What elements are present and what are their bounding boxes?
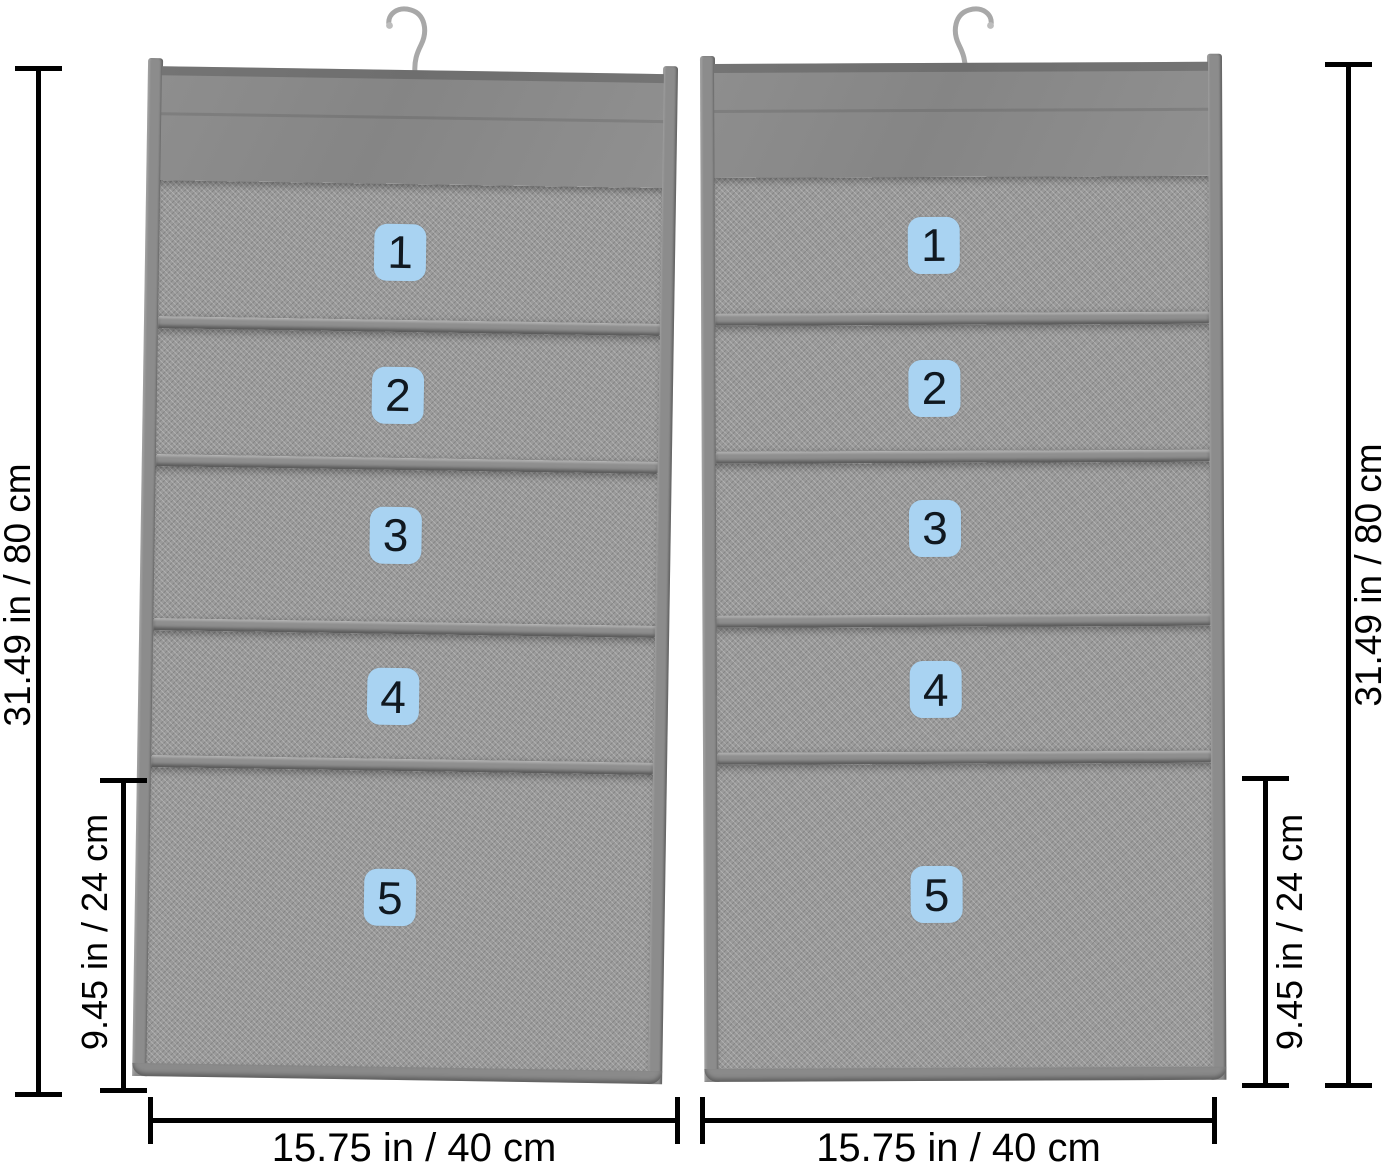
dimension-line-pocket5-left [121, 778, 126, 1093]
pocket-number-badge: 2 [371, 366, 424, 424]
mesh-pocket-1: 1 [158, 180, 662, 324]
pocket-number-badge: 5 [911, 866, 963, 923]
mesh-pocket-4: 4 [716, 626, 1211, 753]
dimension-label-width-left: 15.75 in / 40 cm [148, 1126, 680, 1168]
dimension-line-width-left [148, 1118, 680, 1123]
mesh-pocket-2: 2 [156, 328, 660, 462]
pocket-number-badge: 1 [908, 216, 960, 273]
pocket-number-badge: 3 [369, 506, 422, 564]
pocket-rows: 1 2 3 4 5 [714, 176, 1212, 1072]
mesh-pocket-5: 5 [146, 767, 653, 1074]
dimension-label-width-right: 15.75 in / 40 cm [700, 1126, 1217, 1168]
pocket-number-badge: 3 [909, 499, 961, 556]
organizer-left: 1 2 3 4 5 [132, 66, 678, 1084]
pocket-number-badge: 4 [367, 668, 420, 726]
mesh-pocket-1: 1 [714, 176, 1209, 314]
pocket-number-badge: 1 [374, 223, 427, 281]
dimension-label-height-right: 31.49 in / 80 cm [1348, 443, 1386, 706]
mesh-pocket-3: 3 [716, 462, 1211, 616]
mesh-pocket-5: 5 [717, 763, 1212, 1072]
pocket-number-badge: 5 [364, 868, 417, 926]
pocket-number-badge: 4 [910, 661, 962, 718]
mesh-pocket-2: 2 [715, 324, 1210, 452]
mesh-pocket-3: 3 [153, 466, 657, 626]
bottom-binding [704, 1067, 1226, 1082]
mesh-pocket-4: 4 [151, 630, 655, 763]
pocket-rows: 1 2 3 4 5 [146, 180, 662, 1074]
organizer-right: 1 2 3 4 5 [700, 62, 1226, 1082]
dimension-label-pocket5-left: 9.45 in / 24 cm [74, 814, 116, 1050]
pocket-number-badge: 2 [908, 359, 960, 416]
dimension-line-width-right [700, 1118, 1217, 1123]
dimension-label-pocket5-right: 9.45 in / 24 cm [1269, 814, 1311, 1050]
hanger-hook-icon-left [375, 1, 455, 73]
dimension-label-height-left: 31.49 in / 80 cm [0, 463, 39, 726]
top-fabric-panel [714, 62, 1208, 178]
top-fabric-panel [160, 66, 664, 188]
dimension-line-pocket5-right [1263, 776, 1268, 1088]
product-dimension-diagram: 1 2 3 4 5 1 [0, 0, 1386, 1168]
